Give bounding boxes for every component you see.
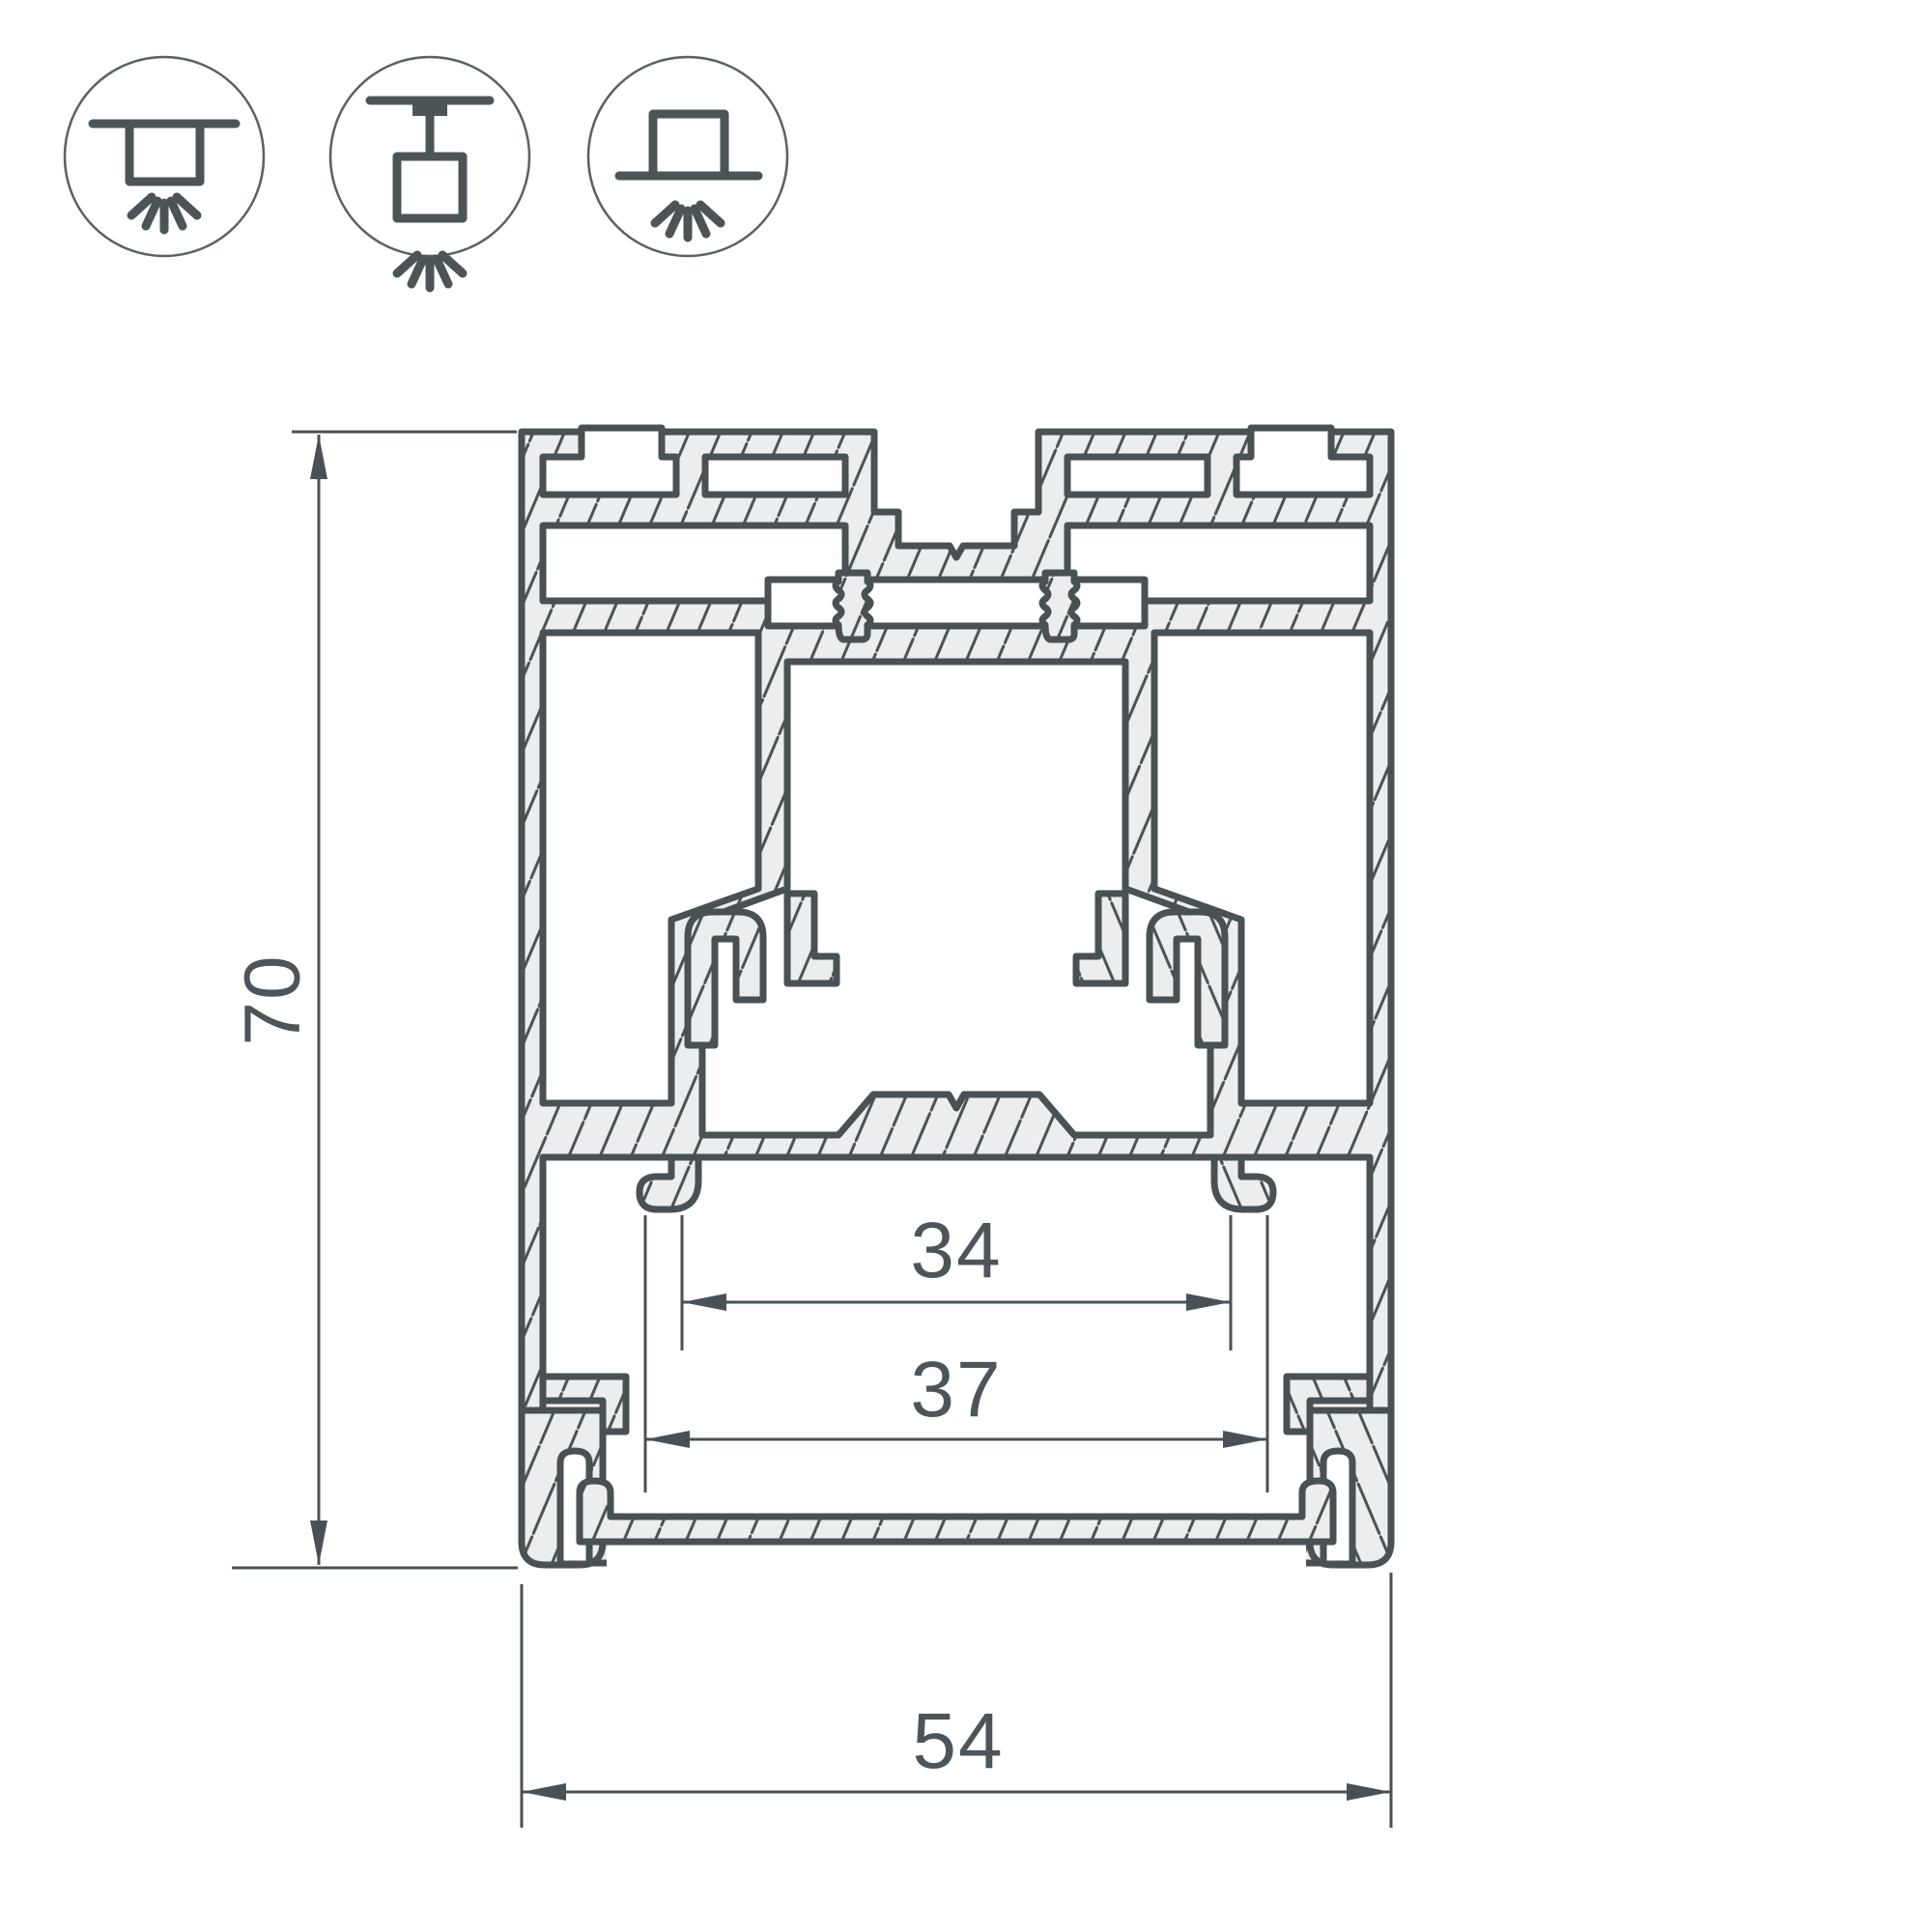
dim-label-37: 37 [910, 1346, 1002, 1434]
bridge-gap [768, 580, 1145, 626]
screw-pocket-right [1067, 457, 1207, 495]
screw-pocket-left [705, 457, 845, 495]
suspended-mount-icon [330, 57, 529, 288]
bottom-opening [607, 1544, 1306, 1621]
dimension-70: 70 [229, 432, 519, 1568]
technical-drawing-page: 70 34 37 54 [0, 0, 1932, 1932]
screw-boss-right [1042, 573, 1077, 639]
recessed-mount-icon [588, 57, 787, 256]
dim-label-34: 34 [910, 1207, 1002, 1294]
light-rays [131, 197, 197, 230]
profile-body [522, 428, 1391, 1621]
mounting-icons [65, 57, 787, 288]
surface-ceiling-mount-icon [65, 57, 264, 256]
screw-boss-left [836, 573, 870, 639]
light-rays [655, 205, 721, 238]
dim-label-54: 54 [912, 1697, 1004, 1785]
dim-label-70: 70 [229, 953, 317, 1045]
light-rays [397, 255, 463, 288]
profile-cross-section-drawing: 70 34 37 54 [0, 0, 1932, 1932]
